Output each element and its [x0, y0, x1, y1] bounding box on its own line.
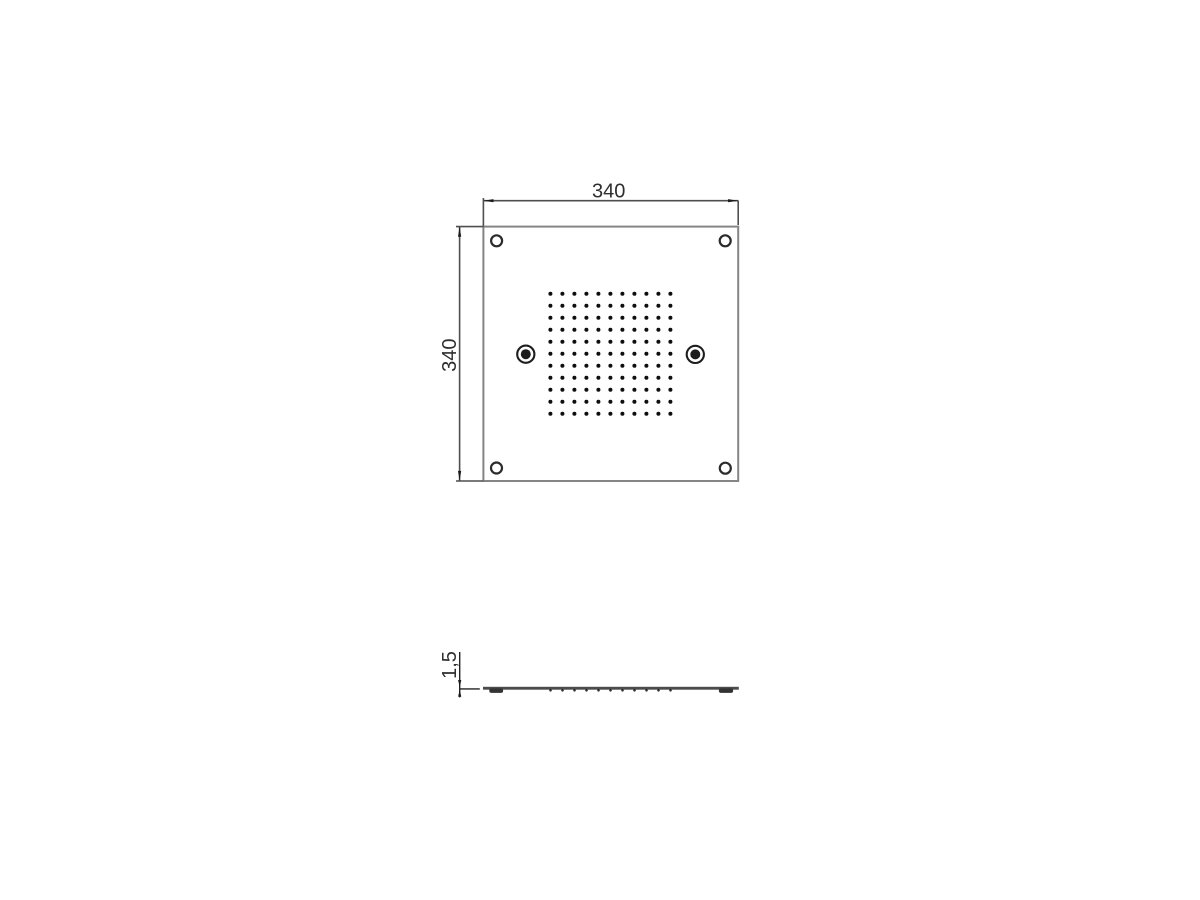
- svg-text:340: 340: [592, 181, 625, 203]
- svg-text:340: 340: [439, 339, 461, 372]
- svg-text:1,5: 1,5: [439, 651, 461, 679]
